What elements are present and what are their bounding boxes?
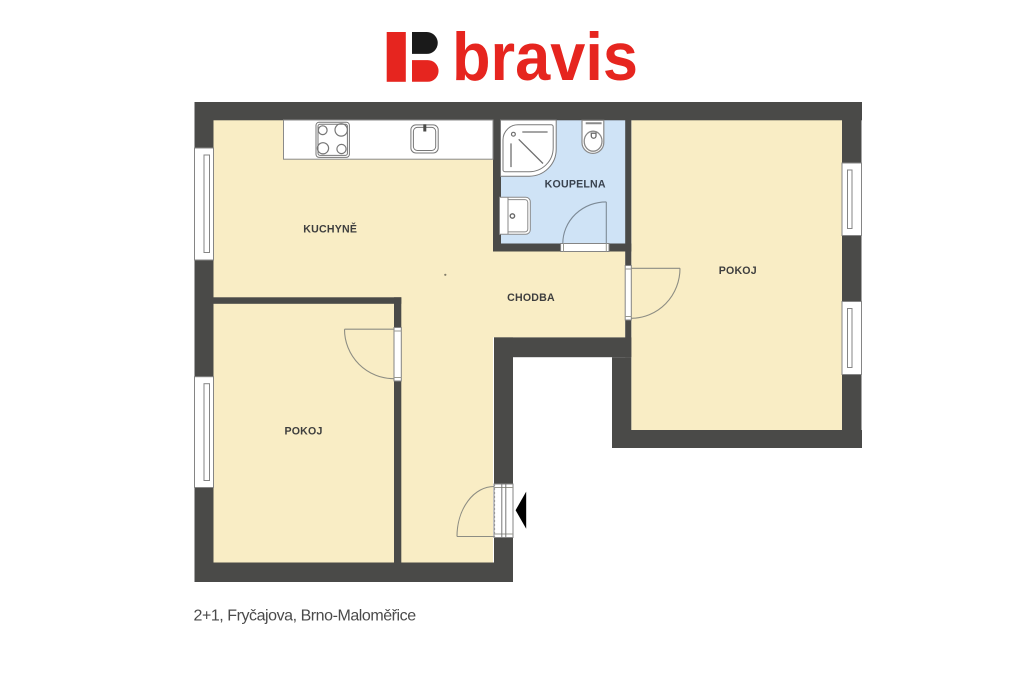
svg-text:KOUPELNA: KOUPELNA: [545, 178, 606, 190]
svg-text:bravis: bravis: [452, 20, 638, 95]
svg-text:KUCHYNĚ: KUCHYNĚ: [303, 222, 357, 235]
svg-text:2+1, Fryčajova, Brno-Maloměřic: 2+1, Fryčajova, Brno-Maloměřice: [194, 608, 417, 625]
svg-text:POKOJ: POKOJ: [719, 265, 757, 277]
svg-text:CHODBA: CHODBA: [507, 292, 555, 304]
svg-text:POKOJ: POKOJ: [284, 426, 322, 438]
